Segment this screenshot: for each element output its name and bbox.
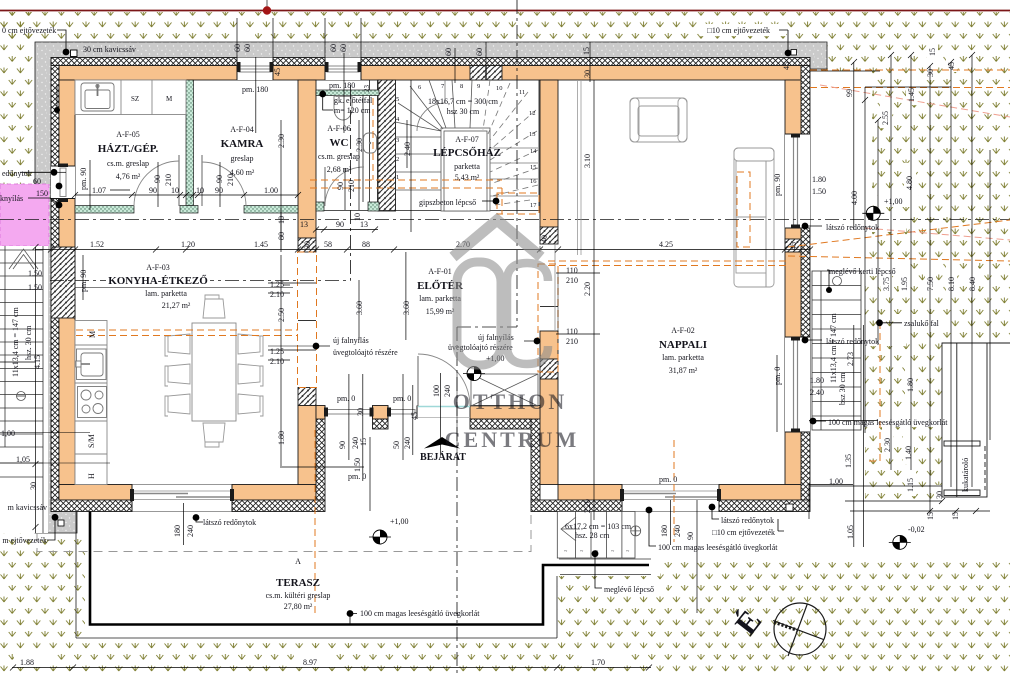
svg-text:8.97: 8.97 — [303, 658, 317, 667]
svg-text:240: 240 — [403, 437, 412, 449]
svg-text:+1,00: +1,00 — [884, 197, 903, 206]
svg-text:-0,02: -0,02 — [908, 525, 925, 534]
svg-text:15,99 m²: 15,99 m² — [426, 307, 455, 316]
svg-text:30: 30 — [583, 70, 592, 78]
svg-text:edőnytok: edőnytok — [2, 169, 32, 178]
svg-text:BEJÁRAT: BEJÁRAT — [420, 451, 466, 463]
svg-text:30 cm kavicssáv: 30 cm kavicssáv — [83, 45, 136, 54]
svg-text:4,76 m²: 4,76 m² — [116, 172, 141, 181]
svg-text:15: 15 — [926, 512, 935, 520]
svg-text:2: 2 — [396, 156, 399, 163]
svg-text:13: 13 — [529, 131, 536, 138]
svg-text:m= 120 cm: m= 120 cm — [334, 106, 371, 115]
svg-text:1.52: 1.52 — [90, 240, 104, 249]
svg-text:8: 8 — [460, 83, 463, 90]
svg-text:1.15: 1.15 — [906, 478, 915, 492]
svg-text:10: 10 — [277, 216, 286, 224]
svg-text:pm. 90: pm. 90 — [79, 168, 88, 190]
svg-text:2.55: 2.55 — [881, 111, 890, 125]
svg-text:45: 45 — [782, 62, 791, 70]
svg-text:210: 210 — [566, 276, 578, 285]
svg-text:2.30: 2.30 — [355, 138, 364, 152]
svg-text:látszó redőnytok: látszó redőnytok — [826, 223, 879, 232]
svg-text:60: 60 — [339, 44, 348, 52]
svg-text:88: 88 — [362, 240, 370, 249]
svg-text:0 cm ejtővezeték: 0 cm ejtővezeték — [2, 26, 56, 35]
svg-text:90: 90 — [686, 532, 695, 540]
svg-text:240: 240 — [186, 525, 195, 537]
svg-text:A-F-04: A-F-04 — [230, 125, 254, 134]
svg-text:cs.m. greslap: cs.m. greslap — [318, 152, 360, 161]
svg-text:2.20: 2.20 — [583, 499, 592, 513]
svg-text:15: 15 — [359, 438, 368, 446]
svg-text:M: M — [88, 331, 97, 338]
svg-text:1,05: 1,05 — [16, 455, 30, 464]
svg-text:10: 10 — [171, 186, 179, 195]
svg-text:greslap: greslap — [230, 154, 253, 163]
svg-text:parketta: parketta — [454, 162, 480, 171]
svg-text:2.10: 2.10 — [270, 357, 284, 366]
svg-text:100 cm magas leesésgátló üvegk: 100 cm magas leesésgátló üvegkorlát — [658, 543, 778, 552]
svg-text:1.80: 1.80 — [906, 378, 915, 392]
svg-text:1.70: 1.70 — [591, 658, 605, 667]
svg-text:cs.m. greslap: cs.m. greslap — [107, 159, 149, 168]
svg-text:150: 150 — [36, 189, 48, 198]
svg-text:+1,00: +1,00 — [390, 517, 409, 526]
svg-text:3.60: 3.60 — [402, 301, 411, 315]
svg-text:210: 210 — [347, 180, 356, 192]
svg-text:1.50: 1.50 — [353, 458, 362, 472]
svg-text:11: 11 — [519, 89, 525, 96]
svg-text:TERASZ: TERASZ — [276, 577, 320, 589]
svg-text:10: 10 — [353, 213, 362, 221]
svg-text:CENTRUM: CENTRUM — [445, 427, 580, 452]
svg-text:1,00: 1,00 — [1, 429, 15, 438]
svg-text:pm. 0: pm. 0 — [348, 472, 366, 481]
svg-text:6x17,2 cm = 103 cm: 6x17,2 cm = 103 cm — [565, 522, 632, 531]
svg-text:90: 90 — [338, 441, 347, 449]
svg-text:2.40: 2.40 — [403, 142, 412, 156]
svg-text:90: 90 — [215, 175, 224, 183]
svg-text:15: 15 — [928, 48, 937, 56]
svg-text:2.73: 2.73 — [846, 352, 855, 366]
svg-text:2.50: 2.50 — [277, 308, 286, 322]
svg-text:100 cm magas leesésgátló üvegk: 100 cm magas leesésgátló üvegkorlát — [360, 609, 480, 618]
svg-text:H: H — [87, 473, 96, 479]
svg-text:90: 90 — [153, 175, 162, 183]
svg-text:bsz 30 cm: bsz 30 cm — [838, 372, 847, 405]
svg-text:hsz. 28 cm: hsz. 28 cm — [575, 531, 610, 540]
svg-text:5: 5 — [396, 96, 399, 103]
svg-text:hsz. 30 cm: hsz. 30 cm — [24, 325, 33, 360]
svg-text:99: 99 — [845, 89, 854, 97]
svg-text:17: 17 — [530, 202, 537, 209]
svg-text:lam. parketta: lam. parketta — [662, 353, 704, 362]
svg-text:látszó redőnytok: látszó redőnytok — [721, 516, 774, 525]
svg-text:1.95: 1.95 — [900, 277, 909, 291]
svg-text:pm. 0: pm. 0 — [773, 367, 782, 385]
svg-text:LÉPCSŐHÁZ: LÉPCSŐHÁZ — [433, 147, 501, 159]
svg-text:pm. 180: pm. 180 — [242, 85, 268, 94]
svg-text:8.40: 8.40 — [968, 277, 977, 291]
svg-text:pm. 0: pm. 0 — [337, 394, 355, 403]
svg-text:2.10: 2.10 — [270, 290, 284, 299]
svg-text:210: 210 — [164, 174, 173, 186]
svg-text:60: 60 — [444, 48, 453, 56]
svg-text:27,80 m²: 27,80 m² — [284, 602, 313, 611]
svg-text:60: 60 — [475, 48, 484, 56]
svg-text:A-F-05: A-F-05 — [116, 130, 140, 139]
svg-text:5,43 m²: 5,43 m² — [455, 173, 480, 182]
svg-text:7.50: 7.50 — [926, 277, 935, 291]
svg-text:3.75: 3.75 — [882, 277, 891, 291]
svg-text:1.80: 1.80 — [810, 376, 824, 385]
svg-text:1.50: 1.50 — [812, 187, 826, 196]
svg-text:1.05: 1.05 — [846, 525, 855, 539]
svg-text:60: 60 — [329, 44, 338, 52]
svg-text:10: 10 — [496, 85, 503, 92]
svg-text:□10 cm ejtővezeték: □10 cm ejtővezeték — [712, 528, 775, 537]
svg-text:A: A — [295, 557, 301, 566]
svg-text:2.20: 2.20 — [583, 282, 592, 296]
svg-text:4.15: 4.15 — [33, 355, 42, 369]
svg-text:meglévő kerti lépcső: meglévő kerti lépcső — [829, 267, 896, 276]
svg-text:pm. 0: pm. 0 — [659, 475, 677, 484]
svg-text:45: 45 — [273, 68, 282, 76]
svg-text:1.45: 1.45 — [907, 88, 916, 102]
svg-text:110: 110 — [566, 327, 578, 336]
svg-text:m ejtővezeték: m ejtővezeték — [2, 536, 47, 545]
svg-text:4.25: 4.25 — [659, 240, 673, 249]
svg-text:9: 9 — [477, 83, 480, 90]
svg-text:90: 90 — [336, 182, 345, 190]
svg-text:3: 3 — [396, 137, 399, 144]
svg-text:új falnyílás: új falnyílás — [333, 336, 369, 345]
svg-text:OTTHON: OTTHON — [453, 389, 568, 414]
svg-text:21,27 m²: 21,27 m² — [162, 301, 191, 310]
svg-text:2.30: 2.30 — [883, 438, 892, 452]
svg-text:23: 23 — [363, 85, 371, 93]
svg-text:4.80: 4.80 — [905, 176, 914, 190]
svg-text:m kavicssáv: m kavicssáv — [8, 503, 47, 512]
svg-text:210: 210 — [226, 174, 235, 186]
svg-text:110: 110 — [566, 266, 578, 275]
svg-text:30: 30 — [356, 408, 365, 416]
svg-text:1.00: 1.00 — [264, 186, 278, 195]
svg-text:knyílás: knyílás — [0, 194, 23, 203]
svg-text:A-F-02: A-F-02 — [671, 326, 695, 335]
svg-text:A-F-03: A-F-03 — [146, 263, 170, 272]
svg-text:18x16,7 cm = 300 cm: 18x16,7 cm = 300 cm — [428, 97, 499, 106]
svg-text:30: 30 — [926, 69, 935, 77]
svg-text:KAMRA: KAMRA — [221, 138, 264, 150]
svg-text:1.35: 1.35 — [844, 454, 853, 468]
svg-text:1,00: 1,00 — [829, 477, 843, 486]
svg-text:45: 45 — [410, 412, 419, 420]
svg-text:80: 80 — [277, 232, 286, 240]
svg-text:látszó redőnytok: látszó redőnytok — [203, 518, 256, 527]
svg-text:2,68 m²: 2,68 m² — [327, 165, 352, 174]
svg-text:2.30: 2.30 — [277, 134, 286, 148]
svg-text:SZ: SZ — [131, 95, 139, 103]
svg-text:240: 240 — [443, 385, 452, 397]
svg-text:30: 30 — [29, 482, 38, 490]
svg-text:M: M — [166, 95, 173, 103]
svg-text:240: 240 — [673, 525, 682, 537]
svg-text:15: 15 — [530, 164, 537, 171]
svg-text:gk. előtétfal: gk. előtétfal — [334, 96, 373, 105]
svg-text:60: 60 — [233, 44, 242, 52]
svg-text:hsz 30 cm: hsz 30 cm — [447, 107, 480, 116]
svg-text:60: 60 — [33, 177, 41, 186]
svg-text:210: 210 — [566, 337, 578, 346]
svg-text:58: 58 — [324, 240, 332, 249]
svg-text:üvegtolóajtó részére: üvegtolóajtó részére — [333, 348, 398, 357]
svg-text:180: 180 — [173, 525, 182, 537]
svg-text:180: 180 — [660, 525, 669, 537]
svg-text:1.25: 1.25 — [270, 347, 284, 356]
svg-text:3.10: 3.10 — [583, 154, 592, 168]
svg-text:2.40: 2.40 — [810, 388, 824, 397]
svg-text:WC: WC — [330, 137, 349, 149]
svg-text:100 cm magas leesésgátló üvegk: 100 cm magas leesésgátló üvegkorlát — [828, 418, 948, 427]
svg-text:A-F-06: A-F-06 — [327, 124, 351, 133]
svg-text:12: 12 — [529, 110, 536, 117]
svg-text:10: 10 — [196, 186, 204, 195]
svg-text:90: 90 — [336, 220, 344, 229]
svg-text:gipszbeton lépcső: gipszbeton lépcső — [419, 198, 476, 207]
svg-text:1.25: 1.25 — [270, 280, 284, 289]
svg-text:A-F-01: A-F-01 — [428, 267, 452, 276]
svg-text:lam. parketta: lam. parketta — [145, 289, 187, 298]
svg-text:45: 45 — [789, 242, 798, 250]
svg-text:15: 15 — [951, 512, 960, 520]
svg-text:4.00: 4.00 — [850, 191, 859, 205]
svg-text:16: 16 — [530, 178, 537, 185]
svg-text:A-F-07: A-F-07 — [455, 135, 479, 144]
svg-text:11x13,4 cm = 147 cm: 11x13,4 cm = 147 cm — [11, 306, 20, 377]
svg-text:1.20: 1.20 — [181, 240, 195, 249]
svg-text:90: 90 — [215, 186, 223, 195]
svg-text:pm. 180: pm. 180 — [329, 81, 355, 90]
svg-text:kukatároló: kukatároló — [961, 458, 970, 492]
svg-text:1.88: 1.88 — [20, 658, 34, 667]
svg-text:1.50: 1.50 — [28, 283, 42, 292]
svg-text:13: 13 — [300, 220, 308, 229]
svg-text:3.60: 3.60 — [355, 301, 364, 315]
svg-text:15: 15 — [582, 47, 591, 55]
svg-text:1.80: 1.80 — [277, 431, 286, 445]
svg-text:1.50: 1.50 — [28, 269, 42, 278]
svg-text:31,87 m²: 31,87 m² — [669, 366, 698, 375]
svg-text:KONYHA-ÉTKEZŐ: KONYHA-ÉTKEZŐ — [108, 275, 208, 287]
svg-text:1.40: 1.40 — [904, 446, 913, 460]
svg-text:NAPPALI: NAPPALI — [659, 339, 707, 351]
svg-text:pm. 0: pm. 0 — [393, 394, 411, 403]
svg-text:cs.m. kültéri greslap: cs.m. kültéri greslap — [266, 591, 331, 600]
svg-text:14: 14 — [530, 148, 537, 155]
svg-text:30: 30 — [303, 241, 312, 249]
svg-text:40: 40 — [540, 235, 549, 243]
svg-text:45: 45 — [947, 62, 956, 70]
svg-text:pm. 90: pm. 90 — [773, 174, 782, 196]
svg-text:□10 cm ejtővezeték: □10 cm ejtővezeték — [707, 26, 770, 35]
svg-text:1.07: 1.07 — [92, 186, 106, 195]
svg-text:30: 30 — [935, 491, 944, 499]
svg-text:pm. 90: pm. 90 — [79, 270, 88, 292]
svg-text:90: 90 — [149, 186, 157, 195]
svg-text:50: 50 — [392, 441, 401, 449]
svg-text:zsalukő fal: zsalukő fal — [904, 319, 940, 328]
svg-text:8.10: 8.10 — [947, 277, 956, 291]
svg-text:S/M: S/M — [87, 434, 96, 448]
svg-text:1.80: 1.80 — [812, 175, 826, 184]
svg-text:HÁZT./GÉP.: HÁZT./GÉP. — [98, 143, 159, 155]
svg-text:meglévő lépcső: meglévő lépcső — [604, 585, 654, 594]
svg-text:11x13,4 cm = 147 cm: 11x13,4 cm = 147 cm — [829, 312, 838, 383]
svg-text:1.45: 1.45 — [254, 240, 268, 249]
svg-text:100: 100 — [432, 385, 441, 397]
svg-text:60: 60 — [243, 44, 252, 52]
